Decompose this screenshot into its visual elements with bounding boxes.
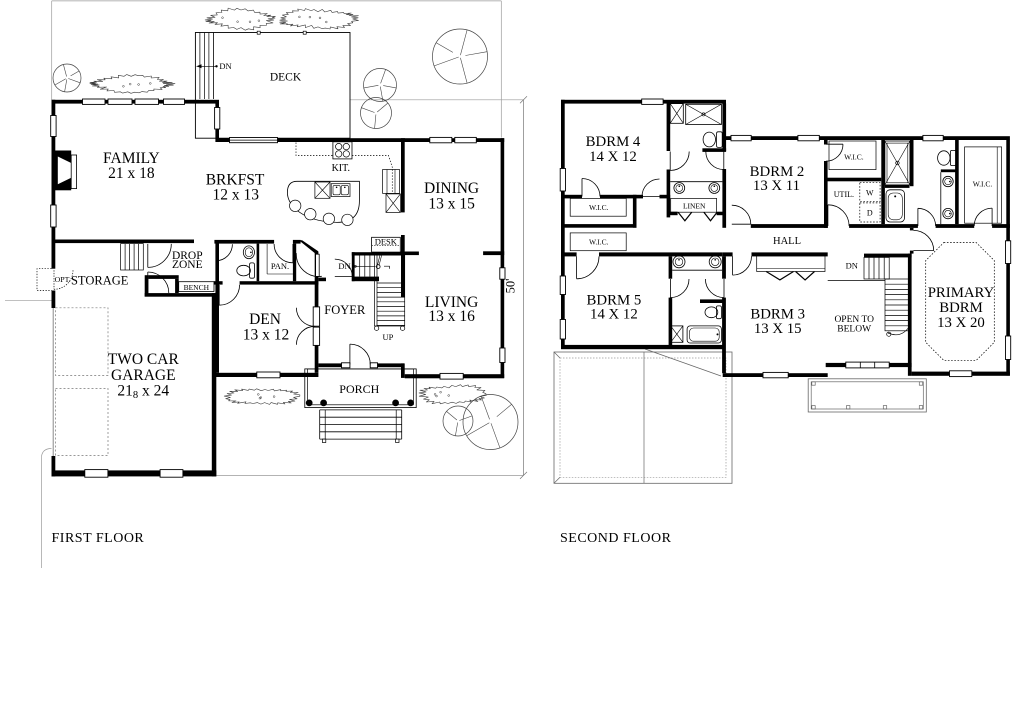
svg-text:UTIL.: UTIL. — [834, 190, 854, 199]
svg-text:12 x 13: 12 x 13 — [212, 186, 259, 203]
svg-text:PORCH: PORCH — [339, 382, 379, 396]
svg-text:BENCH: BENCH — [184, 283, 210, 292]
svg-text:BELOW: BELOW — [837, 324, 871, 334]
svg-text:DN: DN — [338, 261, 350, 271]
svg-text:50': 50' — [504, 279, 518, 294]
svg-text:PAN.: PAN. — [271, 261, 289, 271]
svg-text:DN: DN — [846, 260, 858, 270]
svg-text:W.I.C.: W.I.C. — [844, 153, 864, 162]
svg-text:13 x 15: 13 x 15 — [428, 196, 475, 213]
svg-text:ZONE: ZONE — [172, 259, 203, 271]
svg-text:LINEN: LINEN — [683, 201, 706, 210]
svg-text:14 X 12: 14 X 12 — [590, 307, 638, 323]
svg-text:13 X 15: 13 X 15 — [754, 321, 802, 337]
svg-text:OPEN TO: OPEN TO — [834, 315, 874, 325]
svg-text:13 X 11: 13 X 11 — [753, 178, 800, 194]
svg-text:PRIMARY: PRIMARY — [928, 285, 995, 301]
svg-text:14 X 12: 14 X 12 — [589, 149, 637, 165]
svg-text:BDRM 4: BDRM 4 — [586, 134, 641, 150]
svg-text:D: D — [867, 209, 873, 218]
svg-text:W.I.C.: W.I.C. — [973, 180, 993, 189]
svg-text:DN: DN — [219, 61, 231, 71]
svg-text:OPT.: OPT. — [55, 275, 71, 284]
svg-text:DECK: DECK — [270, 72, 302, 84]
svg-text:FOYER: FOYER — [324, 303, 366, 317]
svg-text:HALL: HALL — [773, 236, 801, 247]
svg-text:TWO CAR: TWO CAR — [108, 351, 180, 368]
svg-text:13 X 20: 13 X 20 — [937, 315, 985, 331]
svg-text:W.I.C.: W.I.C. — [589, 203, 609, 212]
svg-text:218 x 24: 218 x 24 — [117, 383, 169, 402]
svg-text:13 x 16: 13 x 16 — [428, 308, 475, 325]
svg-text:KIT.: KIT. — [332, 163, 350, 174]
svg-text:BDRM: BDRM — [939, 300, 983, 316]
svg-text:STORAGE: STORAGE — [71, 273, 129, 287]
svg-text:21 x 18: 21 x 18 — [108, 165, 155, 182]
svg-text:13 x 12: 13 x 12 — [243, 327, 290, 344]
svg-text:FIRST FLOOR: FIRST FLOOR — [52, 531, 145, 546]
svg-text:DESK: DESK — [375, 236, 398, 246]
svg-text:SECOND FLOOR: SECOND FLOOR — [560, 531, 672, 546]
svg-text:BDRM 3: BDRM 3 — [750, 306, 805, 322]
svg-text:W.I.C.: W.I.C. — [589, 238, 609, 247]
svg-text:W: W — [866, 189, 874, 198]
svg-text:DINING: DINING — [424, 180, 479, 197]
svg-text:UP: UP — [382, 332, 393, 342]
